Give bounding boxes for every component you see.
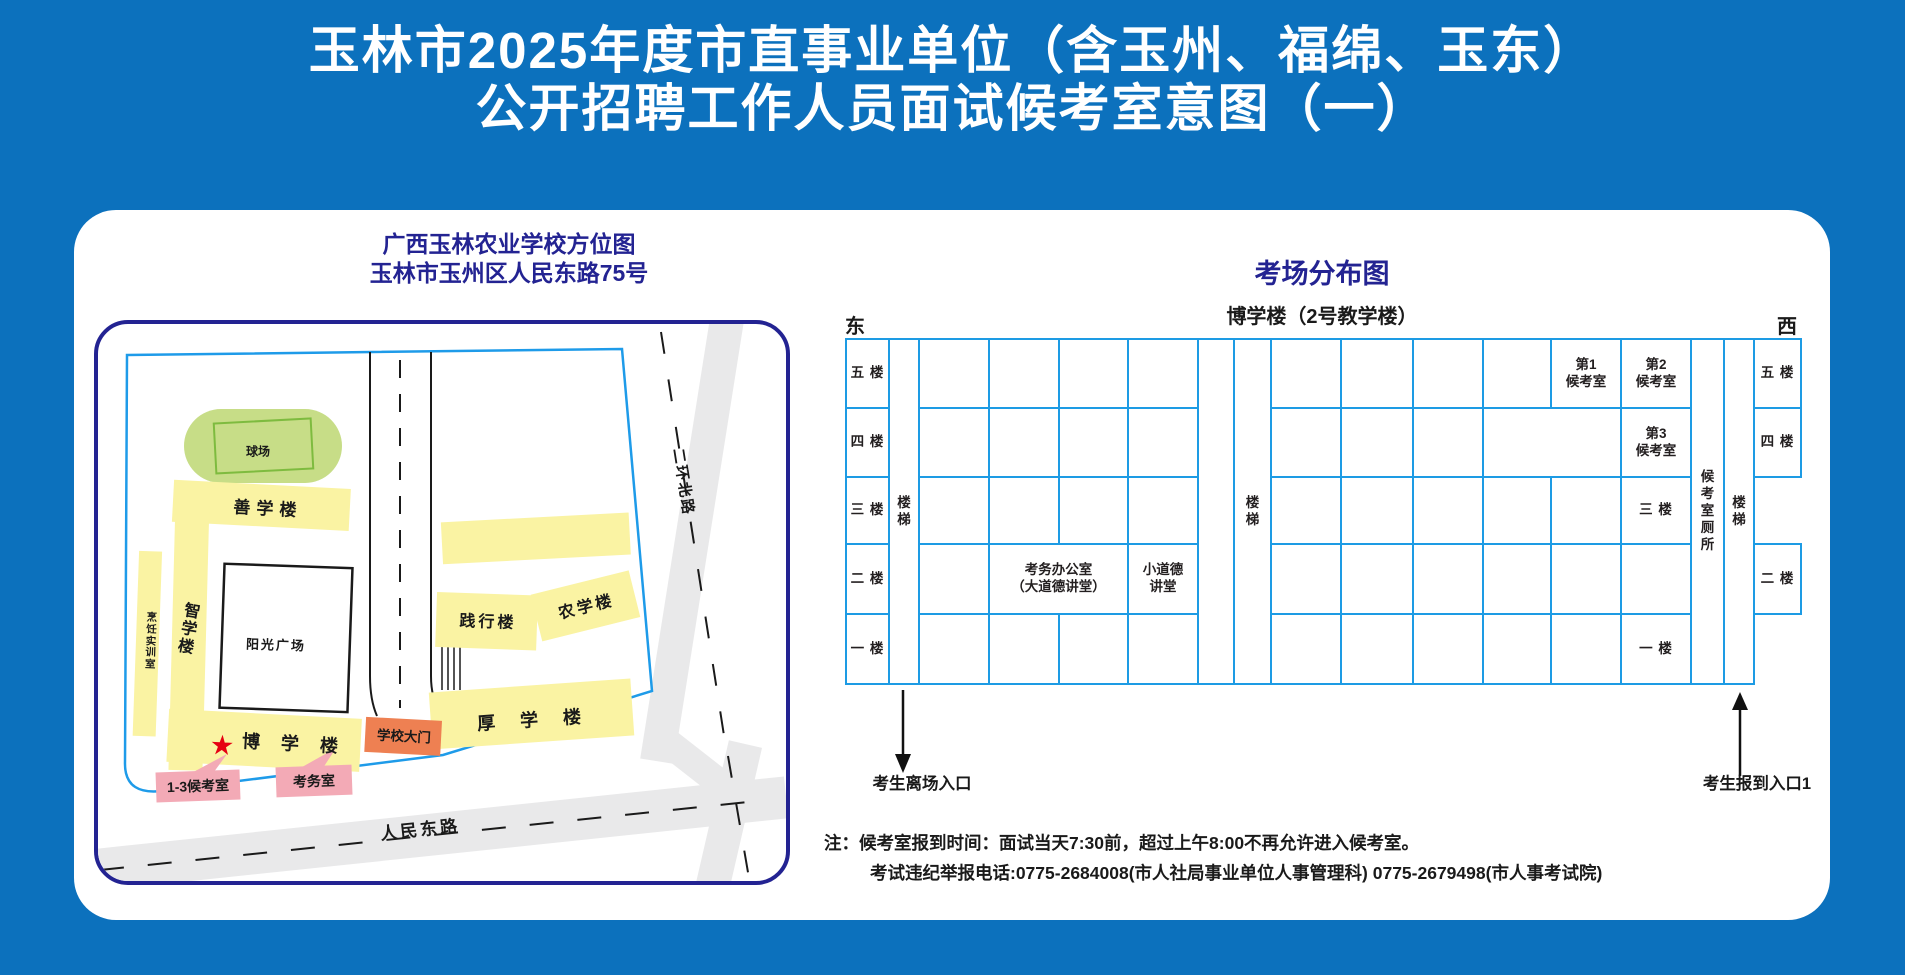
note-line2: 考试违纪举报电话:0775-2684008(市人社局事业单位人事管理科) 077… (870, 860, 1602, 885)
room-cell (1271, 614, 1341, 684)
campus-road-right-edge (431, 352, 440, 712)
floor-label-2f-east: 二 楼 (846, 544, 889, 614)
room-cell (1621, 544, 1691, 614)
entrance-arrow-icon (1727, 690, 1753, 778)
room-cell (1341, 544, 1413, 614)
room-cell (1128, 477, 1198, 544)
room-cell (989, 339, 1059, 408)
floor-label-5f-east: 五 楼 (846, 339, 889, 408)
room-cell (989, 477, 1059, 544)
waiting-room-3: 第3 候考室 (1621, 408, 1691, 477)
stairwell-west: 楼 梯 (1724, 339, 1754, 684)
north-building-shape (441, 513, 631, 565)
plaza-label: 阳光广场 (246, 633, 307, 654)
room-cell (1128, 339, 1198, 408)
room-cell (1483, 614, 1551, 684)
poster-title-line1: 玉林市2025年度市直事业单位（含玉州、福绵、玉东） (0, 22, 1905, 80)
gate-fence-marks (442, 646, 460, 690)
campus-road-left-edge (370, 352, 377, 716)
poster: 玉林市2025年度市直事业单位（含玉州、福绵、玉东） 公开招聘工作人员面试候考室… (0, 0, 1905, 975)
boxue-label: 博 学 楼 (241, 727, 346, 758)
room-cell (919, 544, 989, 614)
room-cell (1059, 408, 1128, 477)
ball-field-label: 球场 (246, 443, 270, 460)
poster-header: 玉林市2025年度市直事业单位（含玉州、福绵、玉东） 公开招聘工作人员面试候考室… (0, 22, 1905, 138)
room-cell (1551, 477, 1621, 544)
exam-layout-title: 考场分布图 (1122, 252, 1522, 291)
room-cell (989, 614, 1059, 684)
room-cell (1341, 477, 1413, 544)
direction-west: 西 (1777, 310, 1797, 339)
waiting-rooms-label: 1-3候考室 (167, 775, 230, 797)
room-cell (1271, 408, 1341, 477)
floor-label-4f-west: 四 楼 (1754, 408, 1801, 477)
erhuan-road-shape (640, 324, 744, 764)
room-cell (1551, 544, 1621, 614)
building-name: 博学楼（2号教学楼） (1122, 300, 1522, 329)
exit-entrance-label: 考生离场入口 (873, 770, 972, 794)
room-cell (1271, 339, 1341, 408)
stairwell-middle: 楼 梯 (1234, 339, 1271, 684)
room-cell (1341, 614, 1413, 684)
small-lecture-hall: 小道德 讲堂 (1128, 544, 1198, 614)
waiting-room-1: 第1 候考室 (1551, 339, 1621, 408)
room-cell (1341, 408, 1413, 477)
campus-map-address: 玉林市玉州区人民东路75号 (234, 259, 784, 288)
room-cell (1483, 339, 1551, 408)
waiting-room-2: 第2 候考室 (1621, 339, 1691, 408)
note-line1: 注：候考室报到时间：面试当天7:30前，超过上午8:00不再允许进入候考室。 (824, 830, 1419, 855)
room-cell (1551, 614, 1621, 684)
room-cell (1413, 408, 1483, 477)
campus-map: 球场 善学楼 智学楼 烹饪实训室 阳光广场 ★ 博 学 楼 学校大门 厚 学 楼… (94, 320, 790, 885)
room-cell (1413, 477, 1483, 544)
room-cell (919, 477, 989, 544)
floor-label-2f-west: 二 楼 (1754, 544, 1801, 614)
exam-grid-table: 五 楼楼 梯楼 梯第1 候考室第2 候考室候 考 室 厕 所楼 梯五 楼四 楼第… (845, 338, 1802, 685)
room-cell (1271, 477, 1341, 544)
room-cell (1413, 614, 1483, 684)
room-cell (1271, 544, 1341, 614)
exit-arrow-icon (890, 688, 916, 776)
room-cell (1483, 544, 1551, 614)
waiting-room-toilet: 候 考 室 厕 所 (1691, 339, 1724, 684)
room-cell (1483, 477, 1551, 544)
room-cell (1413, 544, 1483, 614)
room-cell (989, 408, 1059, 477)
exam-affairs-office: 考务办公室 （大道德讲堂） (989, 544, 1128, 614)
room-cell (919, 339, 989, 408)
campus-map-title: 广西玉林农业学校方位图 (234, 230, 784, 259)
campus-map-title-block: 广西玉林农业学校方位图 玉林市玉州区人民东路75号 (234, 230, 784, 288)
floor-label-4f-east: 四 楼 (846, 408, 889, 477)
gate-label: 学校大门 (377, 724, 432, 747)
floor-label-1f-west: 一 楼 (1621, 614, 1691, 684)
room-cell (1059, 477, 1128, 544)
room-cell (1413, 339, 1483, 408)
direction-east: 东 (845, 310, 865, 339)
room-cell (919, 408, 989, 477)
exam-office-label: 考务室 (293, 770, 336, 791)
room-cell (1059, 614, 1128, 684)
floor-label-5f-west: 五 楼 (1754, 339, 1801, 408)
room-cell (1128, 614, 1198, 684)
content-card: 广西玉林农业学校方位图 玉林市玉州区人民东路75号 (74, 210, 1830, 920)
floor-label-3f-west: 三 楼 (1621, 477, 1691, 544)
cooking-room-label: 烹饪实训室 (143, 612, 158, 671)
room-cell (1341, 339, 1413, 408)
star-icon: ★ (210, 731, 233, 761)
stairwell-east: 楼 梯 (889, 339, 919, 684)
jianxing-label: 践行楼 (459, 607, 517, 633)
room-cell (1059, 339, 1128, 408)
poster-title-line2: 公开招聘工作人员面试候考室意图（一） (0, 80, 1905, 138)
floor-label-3f-east: 三 楼 (846, 477, 889, 544)
shanxue-label: 善学楼 (233, 493, 303, 522)
corridor (1198, 339, 1234, 684)
checkin-entrance-label: 考生报到入口1 (1703, 770, 1811, 794)
room-cell (1128, 408, 1198, 477)
floor-label-1f-east: 一 楼 (846, 614, 889, 684)
room-cell (919, 614, 989, 684)
room-cell (1483, 408, 1621, 477)
